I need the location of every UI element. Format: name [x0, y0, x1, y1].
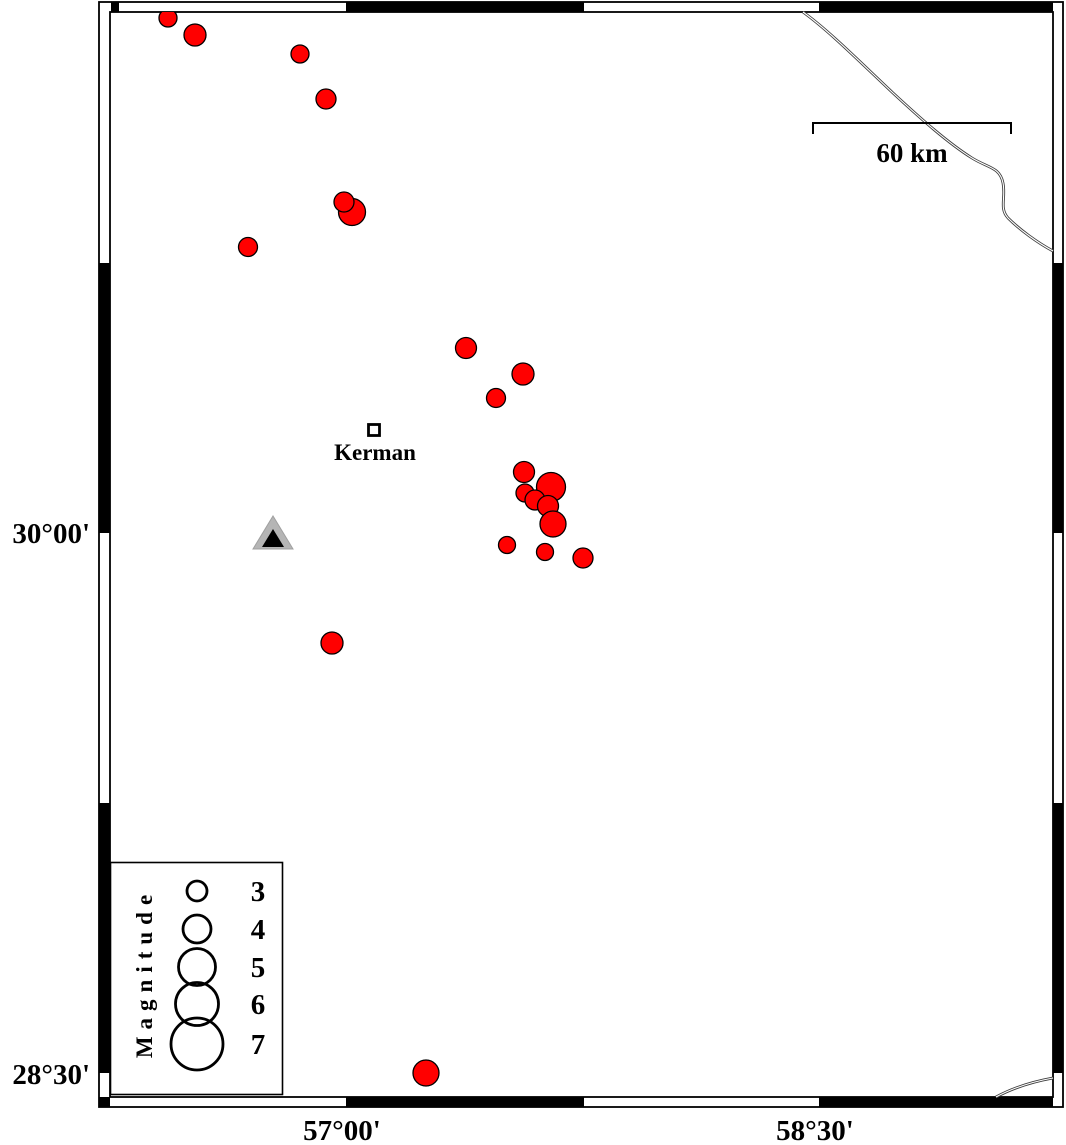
lat-label-28-30: 28°30'	[12, 1059, 90, 1091]
earthquake-marker	[184, 24, 206, 46]
frame-tick-segment	[819, 2, 1053, 12]
earthquake-marker	[321, 632, 343, 654]
earthquake-marker	[316, 89, 336, 109]
earthquake-marker	[540, 511, 566, 537]
legend-title: Magnitude	[132, 888, 157, 1058]
earthquake-marker	[487, 389, 506, 408]
lon-label-57-00: 57°00'	[303, 1115, 381, 1145]
frame-tick-segment	[111, 2, 119, 12]
legend-mag-label-4: 4	[251, 914, 266, 946]
frame-tick-segment	[346, 1097, 584, 1107]
city-square-marker	[369, 425, 380, 436]
frame-tick-segment	[99, 803, 110, 1073]
earthquake-marker	[334, 192, 354, 212]
magnitude-legend: Magnitude 34567	[111, 863, 283, 1095]
legend-mag-label-5: 5	[251, 952, 266, 984]
legend-mag-label-7: 7	[251, 1029, 266, 1061]
seismicity-map-figure: Kerman 60 km Magnitude 34567 30°00' 28°3…	[0, 0, 1066, 1145]
legend-mag-label-6: 6	[251, 989, 266, 1021]
earthquake-marker	[512, 363, 534, 385]
earthquake-marker	[514, 462, 535, 483]
lon-label-58-30: 58°30'	[776, 1115, 854, 1145]
lat-label-30-00: 30°00'	[12, 518, 90, 550]
frame-tick-segment	[99, 263, 110, 533]
legend-mag-label-3: 3	[251, 876, 266, 908]
frame-tick-segment	[819, 1097, 1053, 1107]
earthquake-marker	[499, 537, 516, 554]
frame-tick-segment	[1053, 263, 1063, 533]
city-label: Kerman	[334, 440, 416, 465]
legend-magnitude-values: 34567	[251, 876, 266, 1061]
earthquake-marker	[413, 1060, 439, 1086]
earthquake-marker	[573, 548, 593, 568]
earthquake-marker	[456, 338, 477, 359]
earthquake-marker	[291, 45, 309, 63]
scalebar-label: 60 km	[876, 138, 948, 168]
frame-tick-segment	[99, 1097, 110, 1107]
frame-tick-segment	[346, 2, 584, 12]
map-canvas: Kerman 60 km Magnitude 34567 30°00' 28°3…	[0, 0, 1066, 1145]
earthquake-marker	[537, 544, 554, 561]
frame-tick-segment	[1053, 803, 1063, 1073]
earthquake-marker	[239, 238, 258, 257]
